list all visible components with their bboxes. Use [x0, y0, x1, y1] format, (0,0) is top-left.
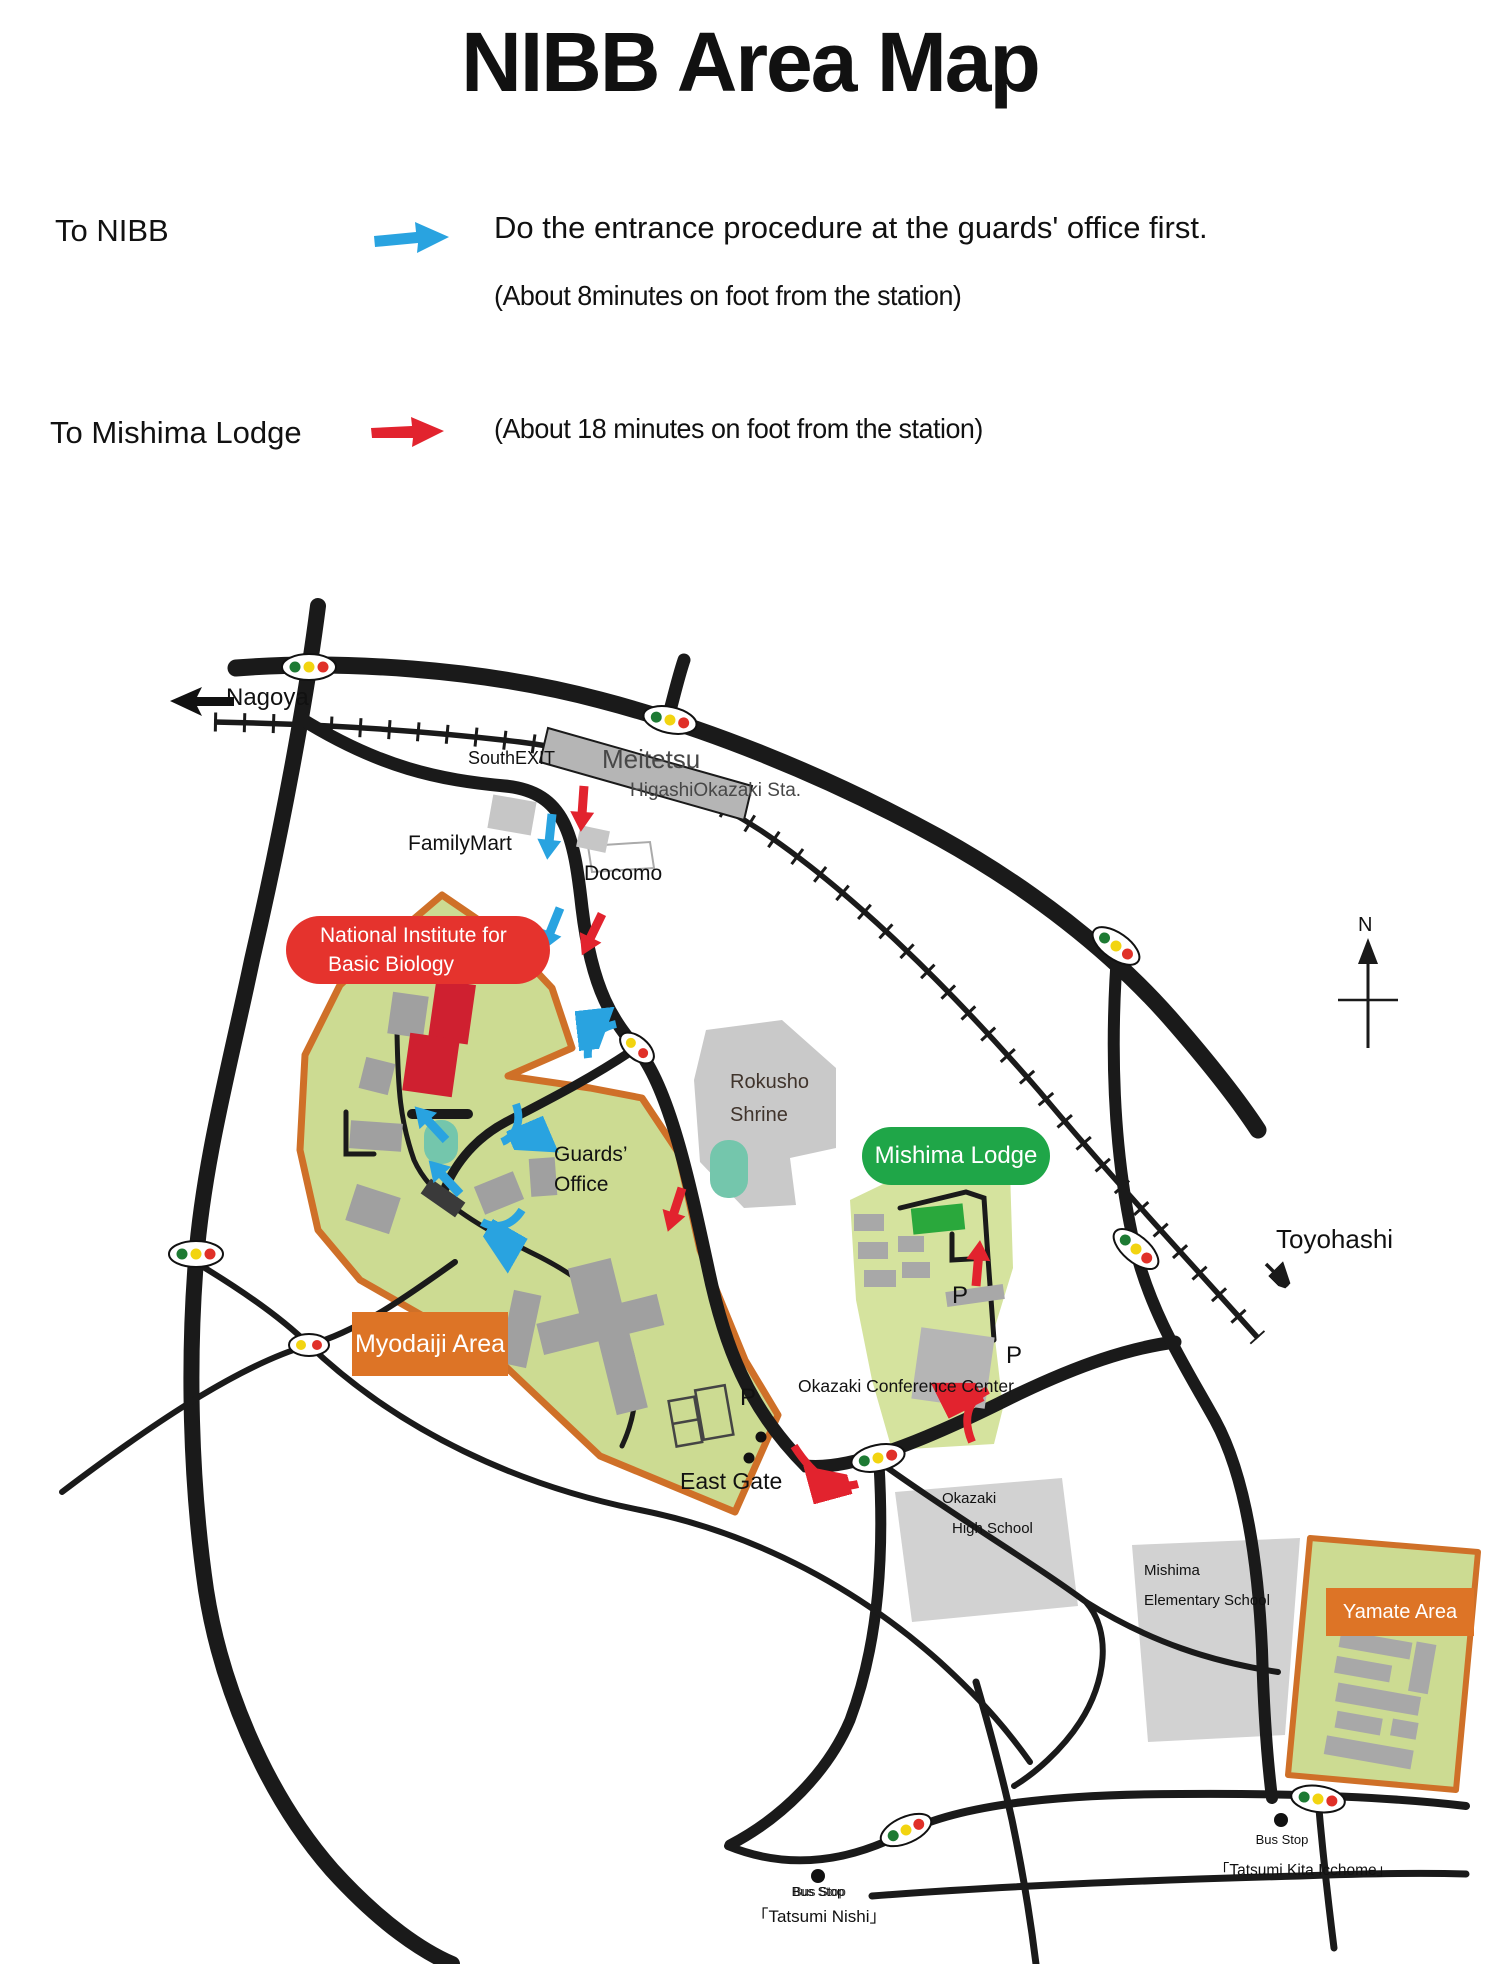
nagoya-label: Nagoya — [226, 684, 309, 712]
legend-blue-arrow-icon — [374, 222, 449, 253]
meitetsu-label: Meitetsu — [602, 744, 700, 775]
parking-label: P — [952, 1282, 968, 1310]
rokusho-line2: Shrine — [730, 1099, 809, 1132]
legend-red-arrow-icon — [371, 417, 444, 447]
guards-line1: Guards’ — [554, 1140, 628, 1170]
legend-to-nibb-label: To NIBB — [55, 213, 169, 249]
mishima-lodge-badge: Mishima Lodge — [862, 1127, 1050, 1185]
docomo-label: Docomo — [584, 862, 662, 886]
guards-office-label: Guards’ Office — [554, 1140, 628, 1200]
traffic-light — [1289, 1782, 1346, 1815]
yamate-area-badge: Yamate Area — [1326, 1588, 1474, 1636]
legend-nibb-time: (About 8minutes on foot from the station… — [494, 280, 961, 312]
tatsumi-nishi-label: 「Tatsumi Nishi」 — [744, 1902, 894, 1927]
bus-stop-dot — [1274, 1813, 1288, 1827]
familymart-building — [487, 794, 536, 835]
blue-route-arrow-icon — [588, 1024, 616, 1058]
rokusho-shrine-label: Rokusho Shrine — [730, 1066, 809, 1132]
traffic-light — [641, 702, 699, 739]
legend-nibb-note: Do the entrance procedure at the guards'… — [494, 210, 1208, 246]
compass-icon — [1338, 938, 1398, 1048]
toyohashi-label: Toyohashi — [1276, 1224, 1393, 1255]
conference-center-label: Okazaki Conference Center — [798, 1376, 1014, 1397]
traffic-light — [282, 654, 336, 680]
elementary-line1: Mishima — [1144, 1562, 1200, 1579]
bus-stop-label: Bus Stop — [1240, 1832, 1324, 1847]
traffic-light — [289, 1334, 329, 1356]
page-title: NIBB Area Map — [0, 14, 1500, 111]
guards-line2: Office — [554, 1170, 628, 1200]
tatsumi-kita-label: 「Tatsumi Kita Icchome」 — [1198, 1858, 1408, 1880]
road-funnel-south — [730, 1464, 881, 1845]
traffic-light — [849, 1440, 907, 1477]
legend-lodge-time: (About 18 minutes on foot from the stati… — [494, 413, 983, 445]
rokusho-line1: Rokusho — [730, 1066, 809, 1099]
east-gate-dot — [756, 1432, 767, 1443]
nagoya-arrow-icon — [170, 687, 234, 716]
shrine-pond — [710, 1140, 748, 1198]
parking-label: P — [740, 1384, 756, 1412]
south-exit-label: SouthEXIT — [468, 748, 555, 769]
high-school-line1: Okazaki — [942, 1490, 996, 1507]
road-bottom-vertical — [976, 1682, 1036, 1964]
compass-north-label: N — [1358, 914, 1372, 937]
traffic-light — [169, 1241, 223, 1267]
east-gate-dot — [744, 1453, 755, 1464]
toyohashi-arrow-icon — [1266, 1264, 1288, 1286]
myodaiji-area-badge: Myodaiji Area — [352, 1312, 508, 1376]
road-bottom-long — [728, 1794, 1466, 1861]
parking-label: P — [1006, 1342, 1022, 1370]
nibb-badge: National Institute for Basic Biology — [286, 916, 550, 984]
nibb-area-map-page: NIBB Area Map To NIBB Do the entrance pr… — [0, 0, 1500, 1964]
red-route-arrow-icon — [569, 785, 596, 833]
high-school-line2: High School — [952, 1520, 1033, 1537]
elementary-line2: Elementary School — [1144, 1592, 1270, 1609]
nibb-badge-line1: National Institute for — [320, 921, 550, 950]
bus-stop-dot — [811, 1869, 825, 1883]
east-gate-label: East Gate — [680, 1468, 782, 1495]
bus-stop-label: Bus Stop — [776, 1884, 860, 1899]
nibb-badge-line2: Basic Biology — [320, 950, 550, 979]
legend-to-lodge-label: To Mishima Lodge — [50, 415, 302, 451]
familymart-label: FamilyMart — [408, 832, 512, 856]
station-name-label: HigashiOkazaki Sta. — [630, 780, 801, 802]
